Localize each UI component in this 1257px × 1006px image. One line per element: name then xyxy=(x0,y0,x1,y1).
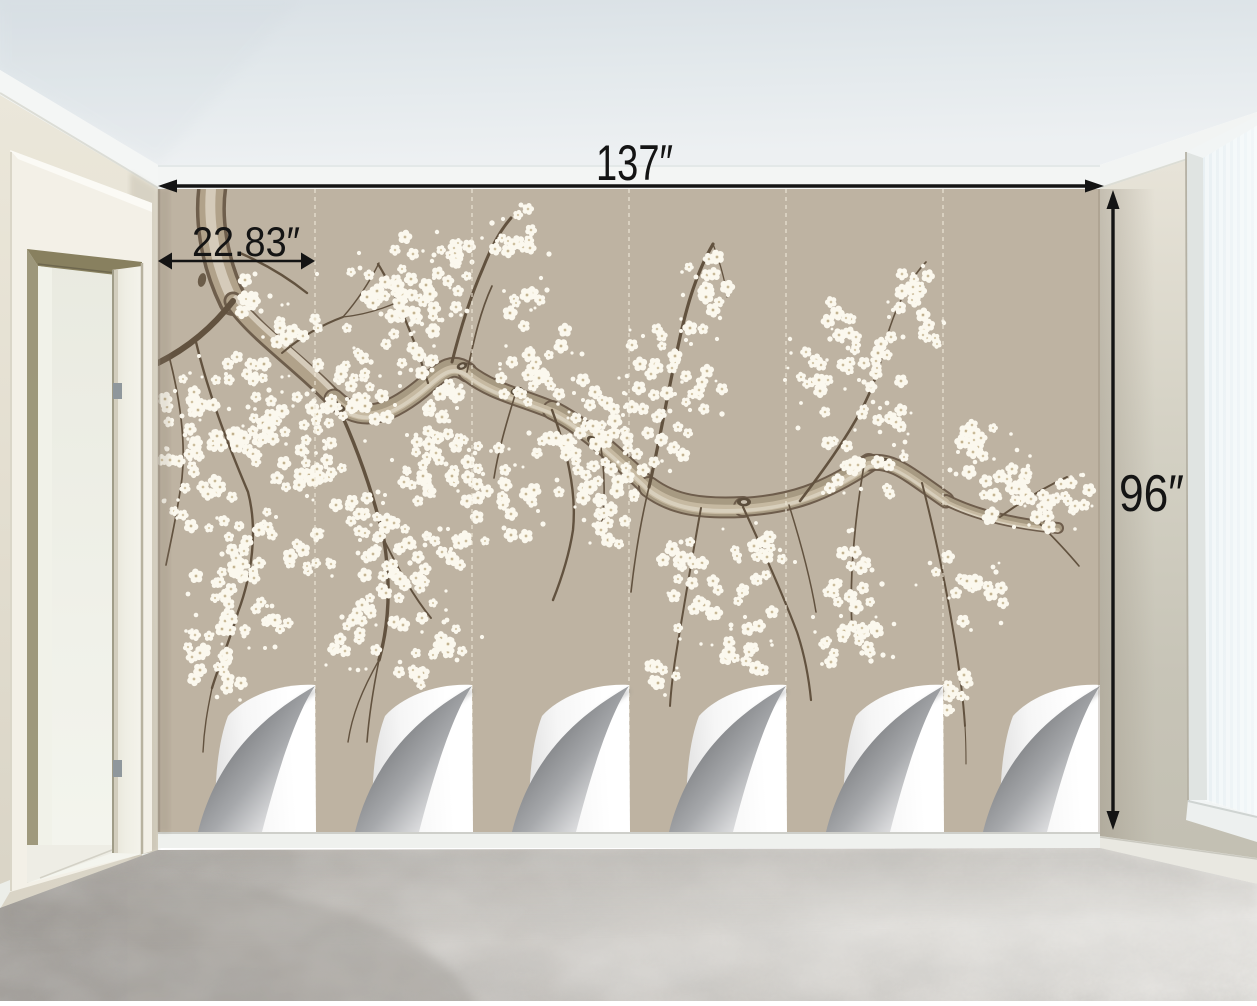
svg-text:137″: 137″ xyxy=(596,135,673,191)
svg-text:22.83″: 22.83″ xyxy=(192,218,300,265)
svg-text:96″: 96″ xyxy=(1119,465,1184,523)
